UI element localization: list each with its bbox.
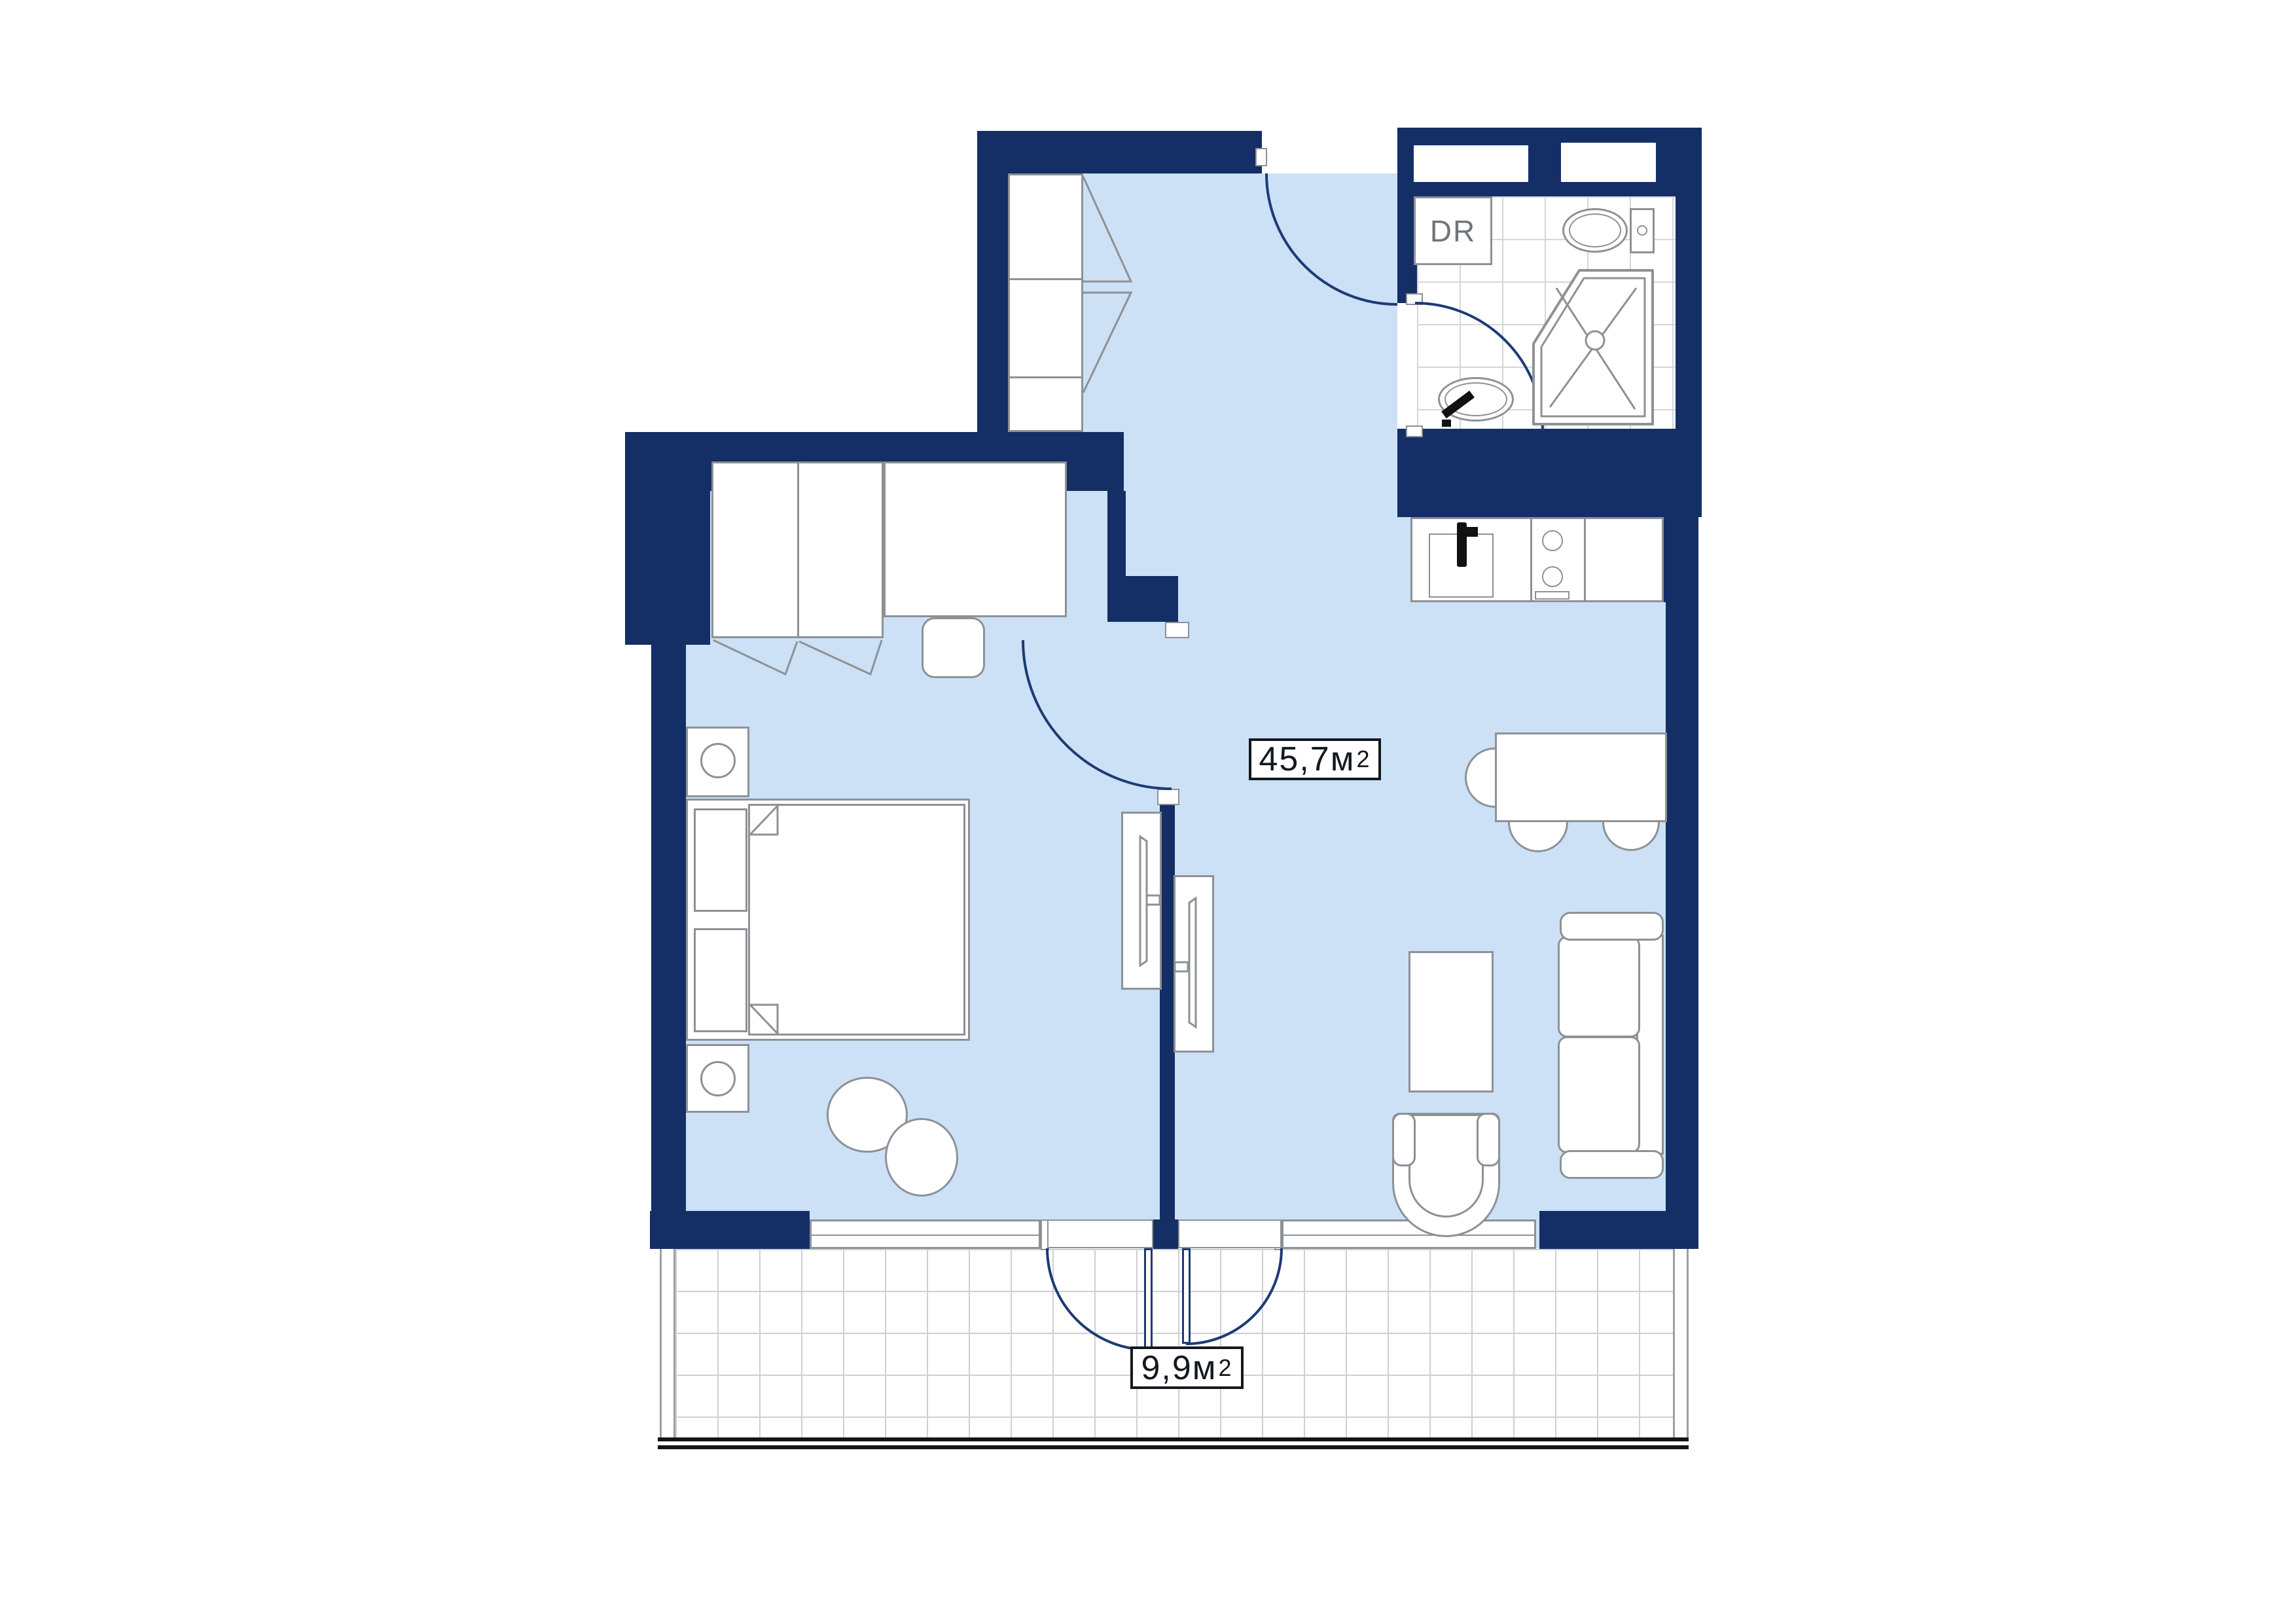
armchair-armrest [1477, 1113, 1500, 1166]
balcony-area-unit: м [1193, 1348, 1217, 1388]
living-area-value: 45,7 [1259, 740, 1331, 779]
wall-niche [1414, 145, 1528, 182]
wall-segment [650, 1211, 810, 1249]
living-area-label: 45,7 м2 [1249, 738, 1381, 780]
balcony-area-label: 9,9 м2 [1130, 1346, 1244, 1389]
counter-divider [1530, 518, 1532, 601]
partition-footing [1153, 1219, 1178, 1249]
armchair-seat [1408, 1114, 1484, 1218]
counter-divider [1584, 518, 1586, 601]
living-room-window [1282, 1219, 1536, 1249]
wall-niche [1561, 143, 1656, 182]
sofa-armrest [1560, 912, 1664, 941]
partition-wall [1160, 789, 1175, 1219]
balcony-area-value: 9,9 [1141, 1348, 1192, 1388]
desk [884, 461, 1067, 617]
balcony-door-threshold [1047, 1219, 1153, 1248]
wall-segment [1664, 517, 1698, 602]
hall-closet [1008, 173, 1083, 432]
tv-panel-bedroom [1121, 812, 1162, 990]
balcony-door-leaf [1182, 1248, 1191, 1344]
door-jamb [1406, 425, 1423, 437]
wall-pier [625, 432, 710, 645]
bedroom-window [810, 1219, 1041, 1249]
mattress [748, 804, 965, 1036]
entry-door-threshold [1262, 134, 1397, 172]
balcony-right-railing [1673, 1249, 1689, 1447]
sofa-cushion [1558, 1036, 1640, 1153]
lamp-icon [700, 1061, 736, 1096]
hall-closet-shelf [1009, 278, 1082, 280]
toilet-bowl-inner [1569, 213, 1621, 247]
floor-plan: DR [0, 0, 2296, 1624]
balcony-door-leaf [1144, 1248, 1153, 1350]
dining-table [1495, 732, 1667, 822]
door-jamb [1255, 148, 1267, 166]
lamp-icon [700, 743, 736, 778]
coffee-table [1408, 951, 1494, 1092]
wall-segment [977, 131, 1008, 433]
wall-segment [1676, 128, 1702, 458]
balcony-front-railing [658, 1437, 1689, 1449]
door-jamb [1406, 293, 1423, 305]
wall-segment [988, 131, 1262, 173]
pillow [694, 928, 747, 1032]
door-jamb [1157, 789, 1179, 805]
balcony-left-railing [660, 1249, 675, 1447]
wall-segment [1107, 491, 1126, 576]
wall-segment [651, 645, 686, 1249]
sofa-backrest [1636, 935, 1664, 1155]
kitchen-sink [1429, 533, 1494, 598]
pouf [885, 1118, 958, 1197]
balcony-floor [675, 1249, 1673, 1439]
desk-chair [922, 617, 985, 678]
wall-segment [1397, 429, 1702, 517]
wall-segment [1666, 602, 1698, 1249]
sofa-cushion [1558, 936, 1640, 1038]
stove-burner-icon [1542, 566, 1563, 587]
toilet-button [1637, 225, 1647, 236]
hall-closet-shelf [1009, 376, 1082, 378]
living-area-unit: м [1331, 740, 1355, 779]
oven-handle [1535, 591, 1570, 600]
door-jamb [1165, 622, 1189, 638]
armchair-armrest [1392, 1113, 1416, 1166]
wall-segment [1107, 576, 1178, 622]
bathroom-sink-inner [1444, 382, 1507, 416]
wardrobe-divider [797, 463, 799, 637]
pillow [694, 808, 747, 912]
sofa-armrest [1560, 1150, 1664, 1179]
stove-burner-icon [1542, 530, 1563, 551]
tv-panel-living [1174, 875, 1214, 1053]
balcony-door-threshold [1178, 1219, 1282, 1248]
dryer-label: DR [1430, 213, 1476, 249]
dryer-box: DR [1414, 196, 1492, 265]
